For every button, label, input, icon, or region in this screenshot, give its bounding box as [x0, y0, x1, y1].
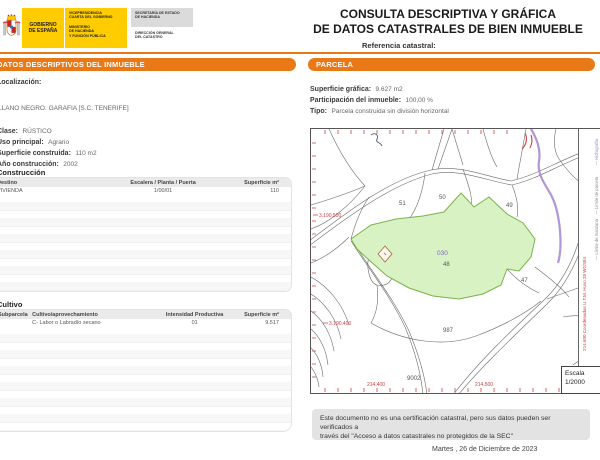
coord-label-bottom-right: 214.500: [475, 382, 493, 388]
utm-note: 214.600 Coordenadas U.T.M. Huso 28 WGS84: [582, 257, 587, 351]
coord-label-bottom-left: 214.400: [367, 382, 385, 388]
date-text: Martes , 26 de Diciembre de 2023: [432, 446, 600, 453]
secretaria-block: SECRETARÍA DE ESTADO DE HACIENDA: [131, 8, 193, 27]
parcel-label-48: 48: [443, 262, 450, 268]
gobierno-wordmark: GOBIERNO DE ESPAÑA: [22, 8, 64, 48]
empty-rows: [0, 327, 291, 431]
parcel-label-49: 49: [506, 203, 513, 209]
coord-label-left-top: 3.190.500: [319, 213, 341, 219]
header-divider: [0, 52, 600, 54]
parcela-section-header: PARCELA: [308, 58, 595, 71]
map-legend: — Hidrografía — Límite zona verde — Lími…: [578, 129, 600, 393]
escala-label: Escala: [565, 369, 600, 378]
cultivo-heading: Cultivo: [0, 300, 22, 309]
red-map-marks: [522, 133, 532, 149]
anio-construccion-label: Año construcción:: [0, 161, 59, 168]
table-row: C- Labor o Labradío secano 01 9.517: [0, 319, 291, 327]
legend-item-limite-parcela: — Límite de parcela: [594, 177, 600, 214]
coord-label-left-bottom: 3.190.400: [329, 321, 351, 327]
ministry-block: VICEPRESIDENCIA CUARTA DEL GOBIERNO MINI…: [65, 8, 127, 48]
highlight-label: 030: [437, 250, 448, 257]
cultivo-table: Subparcela Cultivo/aprovechamiento Inten…: [0, 309, 292, 432]
direccion-block: DIRECCIÓN GENERAL DEL CATASTRO: [131, 27, 193, 48]
parcela-panel: PARCELA Superficie gráfica: 9.627 m2 Par…: [308, 58, 600, 71]
datos-descriptivos-panel: DATOS DESCRIPTIVOS DEL INMUEBLE Localiza…: [0, 58, 296, 71]
construccion-table: Destino Escalera / Planta / Puerta Super…: [0, 177, 292, 292]
parcel-label-987: 987: [443, 328, 454, 334]
empty-rows: [0, 195, 291, 291]
tipo-label: Tipo:: [310, 108, 327, 115]
parcel-label-47: 47: [521, 278, 528, 284]
referencia-catastral-label: Referencia catastral:: [300, 41, 596, 50]
cadastral-map-drawing: 51 50 49 48 47 987 9002 030 3.190.500 3.…: [311, 129, 600, 393]
construccion-heading: Construcción: [0, 168, 45, 177]
localizacion-label: Localización:: [0, 79, 41, 86]
legend-item-limite-manzana: — Límite de manzana: [594, 219, 600, 260]
parcel-label-50: 50: [439, 195, 446, 201]
parcela-fields: Superficie gráfica: 9.627 m2 Participaci…: [310, 78, 449, 111]
government-logo: GOBIERNO DE ESPAÑA VICEPRESIDENCIA CUART…: [2, 8, 193, 48]
parcel-label-51: 51: [399, 201, 406, 207]
cadastral-map: 51 50 49 48 47 987 9002 030 3.190.500 3.…: [310, 128, 600, 394]
localizacion-value: LLANO NEGRO. GARAFIA [S.C. TENERIFE]: [0, 105, 129, 112]
anio-construccion-value: 2002: [63, 161, 77, 168]
escala-value: 1/2000: [565, 378, 600, 387]
notice-box: Este documento no es una certificación c…: [312, 409, 590, 440]
left-section-header: DATOS DESCRIPTIVOS DEL INMUEBLE: [0, 58, 296, 71]
inmueble-fields: Clase: RÚSTICO Uso principal: Agrario Su…: [0, 120, 97, 164]
table-row: VIVIENDA 1/00/01 110: [0, 187, 291, 195]
escala-box: Escala 1/2000: [561, 366, 600, 394]
coat-of-arms-icon: [2, 8, 21, 48]
construccion-table-header: Destino Escalera / Planta / Puerta Super…: [0, 178, 291, 187]
parcel-label-9002: 9002: [407, 376, 421, 382]
superficie-construida-value: 110 m2: [75, 150, 96, 157]
legend-item-hidrografia: — Hidrografía: [594, 139, 600, 165]
cultivo-table-header: Subparcela Cultivo/aprovechamiento Inten…: [0, 310, 291, 319]
tipo-value: Parcela construida sin división horizont…: [331, 108, 448, 115]
page-title: CONSULTA DESCRIPTIVA Y GRÁFICA DE DATOS …: [300, 7, 596, 50]
